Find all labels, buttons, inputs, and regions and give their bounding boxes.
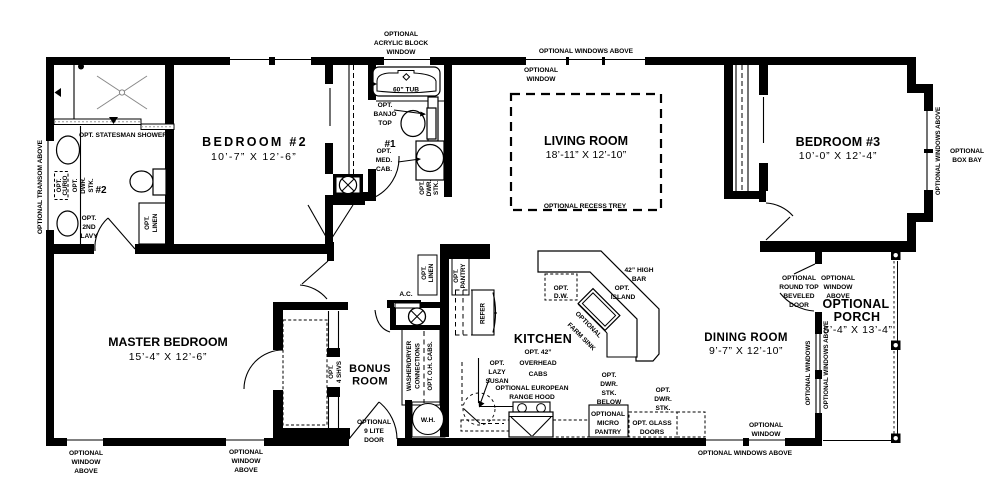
svg-text:MED.: MED.	[376, 157, 393, 164]
svg-text:BONUS: BONUS	[349, 363, 391, 375]
svg-text:BELOW: BELOW	[597, 399, 622, 406]
svg-text:STK.: STK.	[433, 181, 440, 195]
svg-text:OPT.: OPT.	[72, 178, 79, 192]
svg-text:ACRYLIC BLOCK: ACRYLIC BLOCK	[374, 40, 429, 47]
svg-text:ROOM: ROOM	[352, 376, 388, 388]
svg-text:CAB.: CAB.	[376, 166, 392, 173]
svg-text:OPTIONAL WINDOWS ABOVE: OPTIONAL WINDOWS ABOVE	[823, 321, 830, 409]
svg-text:OPT.: OPT.	[82, 215, 97, 222]
svg-text:OPTIONAL RECESS TREY: OPTIONAL RECESS TREY	[544, 203, 627, 210]
svg-text:OPTIONAL WINDOWS ABOVE: OPTIONAL WINDOWS ABOVE	[539, 48, 634, 55]
svg-text:OPTIONAL: OPTIONAL	[524, 67, 558, 74]
svg-text:DWR.: DWR.	[426, 179, 433, 196]
svg-text:#2: #2	[95, 185, 107, 196]
svg-text:OPT. STATESMAN SHOWER: OPT. STATESMAN SHOWER	[79, 132, 167, 139]
svg-text:PANTRY: PANTRY	[460, 263, 467, 289]
svg-text:OPTIONAL: OPTIONAL	[357, 419, 391, 426]
svg-text:WINDOW: WINDOW	[824, 284, 854, 291]
svg-text:ABOVE: ABOVE	[74, 468, 98, 475]
svg-text:OPT.: OPT.	[377, 148, 392, 155]
svg-text:LAVY: LAVY	[80, 233, 98, 240]
svg-text:OPTIONAL: OPTIONAL	[782, 275, 816, 282]
svg-text:OPT.: OPT.	[490, 360, 505, 367]
svg-text:42” HIGH: 42” HIGH	[625, 267, 654, 274]
svg-text:OPT.: OPT.	[554, 285, 569, 292]
svg-text:BEDROOM #3: BEDROOM #3	[796, 135, 881, 149]
svg-text:18’-11” X 12’-10”: 18’-11” X 12’-10”	[546, 149, 627, 161]
svg-text:OPTIONAL WINDOWS: OPTIONAL WINDOWS	[805, 341, 812, 406]
svg-text:BOX BAY: BOX BAY	[952, 157, 982, 164]
svg-text:WASHER/DRYER: WASHER/DRYER	[406, 340, 413, 391]
svg-text:OPT.: OPT.	[602, 372, 617, 379]
svg-text:STK.: STK.	[88, 178, 95, 192]
svg-text:OPTIONAL: OPTIONAL	[69, 450, 103, 457]
svg-text:BEVELED: BEVELED	[783, 293, 814, 300]
svg-text:OPT.: OPT.	[419, 181, 426, 195]
svg-text:DOORS: DOORS	[640, 429, 665, 436]
svg-text:LINEN: LINEN	[152, 213, 159, 232]
svg-text:OPTIONAL: OPTIONAL	[591, 411, 625, 418]
svg-text:2ND: 2ND	[82, 224, 95, 231]
svg-text:9 LITE: 9 LITE	[364, 428, 384, 435]
svg-text:10’-7” X 12’-6”: 10’-7” X 12’-6”	[211, 151, 297, 163]
svg-text:D.W.: D.W.	[554, 293, 568, 300]
svg-text:5’-4” X 13’-4”: 5’-4” X 13’-4”	[823, 324, 892, 336]
svg-text:RANGE HOOD: RANGE HOOD	[509, 394, 555, 401]
svg-text:OPTIONAL: OPTIONAL	[229, 449, 263, 456]
svg-text:MICRO: MICRO	[597, 420, 619, 427]
svg-text:PORCH: PORCH	[834, 310, 881, 324]
svg-text:LINEN: LINEN	[428, 263, 435, 282]
svg-text:W.H.: W.H.	[421, 417, 435, 424]
svg-text:9’-7” X 12’-10”: 9’-7” X 12’-10”	[709, 345, 783, 357]
svg-text:OPTIONAL: OPTIONAL	[821, 275, 855, 282]
svg-text:OPTIONAL WINDOWS ABOVE: OPTIONAL WINDOWS ABOVE	[935, 107, 942, 195]
svg-text:WINDOW: WINDOW	[752, 431, 782, 438]
svg-text:WINDOW: WINDOW	[527, 76, 557, 83]
svg-text:WINDOW: WINDOW	[72, 459, 102, 466]
svg-text:DOOR: DOOR	[364, 437, 384, 444]
svg-text:4 SHVS: 4 SHVS	[336, 361, 343, 383]
svg-text:60” TUB: 60” TUB	[393, 87, 419, 94]
svg-text:OPTIONAL: OPTIONAL	[384, 31, 418, 38]
svg-text:OVERHEAD: OVERHEAD	[519, 360, 557, 367]
svg-text:BEDROOM #2: BEDROOM #2	[202, 135, 308, 149]
svg-text:SUSAN: SUSAN	[485, 378, 508, 385]
svg-text:OPTIONAL: OPTIONAL	[749, 422, 783, 429]
svg-text:TOP: TOP	[378, 120, 392, 127]
svg-text:OPTIONAL: OPTIONAL	[950, 148, 984, 155]
svg-text:WINDOW: WINDOW	[232, 458, 262, 465]
svg-text:10’-0” X 12’-4”: 10’-0” X 12’-4”	[799, 150, 878, 162]
svg-text:DINING ROOM: DINING ROOM	[704, 332, 788, 344]
svg-text:WINDOW: WINDOW	[387, 49, 417, 56]
svg-text:OPT.: OPT.	[615, 285, 630, 292]
svg-text:ISLAND: ISLAND	[611, 294, 636, 301]
svg-text:KITCHEN: KITCHEN	[514, 332, 572, 346]
svg-text:DWR.: DWR.	[600, 381, 618, 388]
svg-text:OPT.: OPT.	[378, 102, 393, 109]
svg-text:REFER: REFER	[480, 302, 487, 324]
svg-text:BAR: BAR	[632, 276, 647, 283]
svg-text:STK.: STK.	[655, 405, 670, 412]
svg-text:LIVING ROOM: LIVING ROOM	[544, 134, 628, 148]
svg-text:DOOR: DOOR	[789, 302, 809, 309]
svg-text:OPT.: OPT.	[453, 269, 460, 283]
svg-text:OPTIONAL TRANSOM ABOVE: OPTIONAL TRANSOM ABOVE	[37, 139, 44, 234]
svg-text:15’-4” X 12’-6”: 15’-4” X 12’-6”	[129, 351, 208, 363]
svg-text:MASTER BEDROOM: MASTER BEDROOM	[108, 335, 228, 349]
svg-text:LAZY: LAZY	[488, 369, 506, 376]
svg-text:ABOVE: ABOVE	[826, 293, 850, 300]
svg-text:DWR.: DWR.	[80, 177, 87, 194]
svg-text:DWR.: DWR.	[654, 396, 672, 403]
svg-text:CURIO: CURIO	[62, 175, 69, 195]
svg-text:PANTRY: PANTRY	[595, 429, 622, 436]
svg-text:OPT. 42”: OPT. 42”	[524, 349, 551, 356]
svg-text:CABS: CABS	[529, 371, 548, 378]
svg-text:ROUND TOP: ROUND TOP	[779, 284, 819, 291]
svg-text:BANJO: BANJO	[373, 111, 396, 118]
svg-text:OPT.: OPT.	[656, 387, 671, 394]
svg-text:OPTIONAL WINDOWS ABOVE: OPTIONAL WINDOWS ABOVE	[698, 450, 793, 457]
svg-text:ABOVE: ABOVE	[234, 467, 258, 474]
svg-text:STK.: STK.	[601, 390, 616, 397]
svg-text:CONNECTIONS: CONNECTIONS	[415, 343, 422, 389]
svg-text:OPTIONAL EUROPEAN: OPTIONAL EUROPEAN	[495, 385, 568, 392]
svg-text:A.C.: A.C.	[399, 291, 412, 298]
svg-text:OPT. GLASS: OPT. GLASS	[632, 420, 672, 427]
svg-text:OPT.: OPT.	[328, 365, 335, 379]
svg-text:OPT.: OPT.	[421, 266, 428, 280]
svg-text:OPT. O.H. CABS.: OPT. O.H. CABS.	[427, 341, 434, 390]
svg-text:OPT.: OPT.	[144, 216, 151, 230]
